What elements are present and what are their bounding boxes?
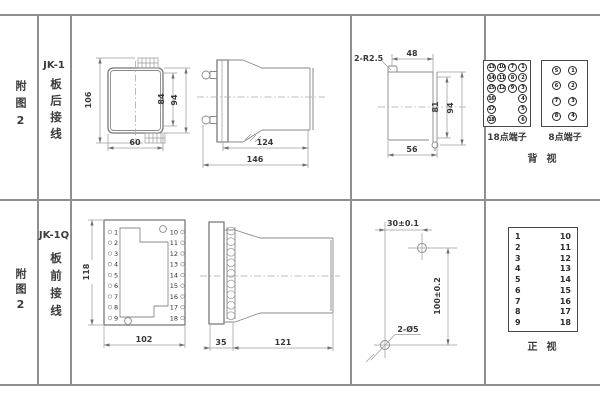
dimensions: 35 121 <box>203 314 333 351</box>
dimensions: 124 146 <box>203 125 308 168</box>
tt-right-12: 12 <box>560 254 571 263</box>
fv-terminal-13: 13 <box>170 261 178 269</box>
grid-vertical-2 <box>70 15 72 385</box>
fv-terminal-15: 15 <box>170 282 178 290</box>
model-label-jk1: JK-1 <box>38 60 70 71</box>
fv-terminal-1: 1 <box>114 229 118 237</box>
terminal-4: 4 <box>518 94 527 103</box>
dim-56: 56 <box>406 145 418 154</box>
tt-right-18: 18 <box>560 318 571 327</box>
terminal-empty <box>508 115 517 124</box>
dim-118: 118 <box>82 263 91 280</box>
dim-124: 124 <box>257 138 274 147</box>
tt-right-13: 13 <box>560 264 571 273</box>
model-label-jk1q: JK-1Q <box>35 230 73 241</box>
fv-terminal-11: 11 <box>170 239 178 247</box>
table-row: 716 <box>515 297 571 306</box>
tt-right-15: 15 <box>560 286 571 295</box>
fv-terminal-8: 8 <box>114 304 118 312</box>
fv-terminal-14: 14 <box>170 272 178 280</box>
drilling-plan-drawing: 30±0.1 100±0.2 2-Ø5 <box>358 210 473 365</box>
jk1q-front-view-drawing: 1 2 3 4 5 6 7 8 9 10 11 12 13 14 15 16 1… <box>75 212 197 357</box>
tt-left-5: 5 <box>515 275 521 284</box>
terminal-3: 3 <box>518 84 527 93</box>
figure-label-top: 附图2 <box>12 80 28 133</box>
grid-bottom-border <box>0 384 600 386</box>
terminal8-2: 2 <box>568 81 577 90</box>
dim-94: 94 <box>170 94 179 106</box>
dim-30: 30±0.1 <box>387 219 419 228</box>
grid-middle-divider <box>0 199 600 201</box>
terminal-13: 13 <box>487 63 496 72</box>
jk1-front-view-drawing: 106 84 94 60 <box>85 45 200 160</box>
tt-right-10: 10 <box>560 232 571 241</box>
terminal-16: 16 <box>487 94 496 103</box>
table-row: 514 <box>515 275 571 284</box>
panel-cutout-drawing: 2-R2.5 48 81 94 56 <box>352 40 477 172</box>
fv-terminal-3: 3 <box>114 250 118 258</box>
fv-terminal-17: 17 <box>170 304 178 312</box>
dim-84: 84 <box>157 93 166 105</box>
dim-146: 146 <box>247 155 264 164</box>
mounting-screws <box>202 71 217 124</box>
terminal-7: 7 <box>508 63 517 72</box>
terminal8-6: 6 <box>552 81 561 90</box>
terminal-17: 17 <box>487 105 496 114</box>
tt-left-6: 6 <box>515 286 521 295</box>
dim-100: 100±0.2 <box>433 277 442 315</box>
tt-left-8: 8 <box>515 307 521 316</box>
wiring-label-rear: 板后接线 <box>48 78 64 144</box>
fv-terminal-2: 2 <box>114 239 118 247</box>
dim-81: 81 <box>431 101 440 113</box>
fv-terminal-12: 12 <box>170 250 178 258</box>
terminal-9: 9 <box>508 84 517 93</box>
dim-48: 48 <box>406 49 418 58</box>
dimensions: 30±0.1 100±0.2 2-Ø5 <box>371 219 450 360</box>
terminal-column-left: 1 2 3 4 5 6 7 8 9 <box>108 229 118 323</box>
rear-view-label: 背视 <box>484 150 600 165</box>
fv-terminal-5: 5 <box>114 272 118 280</box>
terminal-6: 6 <box>518 115 527 124</box>
relay-dimension-figure-page: { "palette": { "background": "#ffffff", … <box>0 0 600 400</box>
front-view-label: 正视 <box>484 338 600 353</box>
dim-corner-radius: 2-R2.5 <box>354 54 384 63</box>
terminal-empty <box>497 115 506 124</box>
dim-35: 35 <box>215 338 227 347</box>
table-row: 817 <box>515 307 571 316</box>
tt-right-17: 17 <box>560 307 571 316</box>
dim-121: 121 <box>275 338 292 347</box>
tt-left-4: 4 <box>515 264 521 273</box>
fv-terminal-10: 10 <box>170 229 178 237</box>
fv-terminal-9: 9 <box>114 315 118 323</box>
tt-right-14: 14 <box>560 275 571 284</box>
tt-left-7: 7 <box>515 297 521 306</box>
terminal8-7: 7 <box>552 97 561 106</box>
dim-60: 60 <box>129 138 141 147</box>
terminal-5: 5 <box>518 105 527 114</box>
table-row: 918 <box>515 318 571 327</box>
grid-top-border <box>0 14 600 16</box>
terminal8-5: 5 <box>552 66 561 75</box>
hole-marks <box>366 222 457 362</box>
dim-hole-label: 2-Ø5 <box>397 324 419 334</box>
terminal-empty <box>497 94 506 103</box>
tt-left-3: 3 <box>515 254 521 263</box>
tt-left-2: 2 <box>515 243 521 252</box>
terminal-empty <box>508 105 517 114</box>
dimensions: 2-R2.5 48 81 94 56 <box>354 49 466 158</box>
terminal-14: 14 <box>487 73 496 82</box>
dim-106: 106 <box>84 91 93 108</box>
terminal-18-label: 18点端子 <box>479 130 535 143</box>
table-row: 413 <box>515 264 571 273</box>
terminal-column-right: 10 11 12 13 14 15 16 17 18 <box>170 229 185 323</box>
terminal-8-label: 8点端子 <box>538 130 592 143</box>
case-outline <box>200 222 340 324</box>
tt-right-11: 11 <box>560 243 571 252</box>
terminal-empty <box>508 94 517 103</box>
table-row: 211 <box>515 243 571 252</box>
case-outline <box>197 60 325 142</box>
fv-terminal-16: 16 <box>170 293 178 301</box>
terminal8-1: 1 <box>568 66 577 75</box>
jk1-side-view-drawing: 124 146 <box>195 50 330 175</box>
tt-left-9: 9 <box>515 318 521 327</box>
terminal-block-8: 5 1 6 2 7 3 8 4 <box>541 60 588 127</box>
fv-terminal-7: 7 <box>114 293 118 301</box>
table-row: 312 <box>515 254 571 263</box>
table-row: 615 <box>515 286 571 295</box>
terminal-11: 11 <box>497 73 506 82</box>
terminal-15: 15 <box>487 84 496 93</box>
terminal8-3: 3 <box>568 97 577 106</box>
fv-terminal-18: 18 <box>170 315 178 323</box>
dim-94b: 94 <box>446 102 455 114</box>
terminal-12: 12 <box>497 84 506 93</box>
terminal-2: 2 <box>518 73 527 82</box>
tt-right-16: 16 <box>560 297 571 306</box>
terminal-1: 1 <box>518 63 527 72</box>
dimensions: 106 84 94 60 <box>84 58 190 151</box>
terminal-table-front: 110 211 312 413 514 615 716 817 918 <box>508 227 578 332</box>
terminal-8: 8 <box>508 73 517 82</box>
tt-left-1: 1 <box>515 232 521 241</box>
terminal-10: 10 <box>497 63 506 72</box>
figure-label-bottom: 附图2 <box>12 268 28 315</box>
table-row: 110 <box>515 232 571 241</box>
terminal-empty <box>497 105 506 114</box>
dim-102: 102 <box>136 335 153 344</box>
terminal-18: 18 <box>487 115 496 124</box>
terminal8-4: 4 <box>568 112 577 121</box>
terminal-block-18: 13 10 7 1 14 11 8 2 15 12 9 3 16 4 17 5 … <box>483 60 531 127</box>
fv-terminal-4: 4 <box>114 261 118 269</box>
jk1q-side-view-drawing: 35 121 <box>200 215 345 355</box>
terminal8-8: 8 <box>552 112 561 121</box>
wiring-label-front: 板前接线 <box>48 252 64 322</box>
fv-terminal-6: 6 <box>114 282 118 290</box>
